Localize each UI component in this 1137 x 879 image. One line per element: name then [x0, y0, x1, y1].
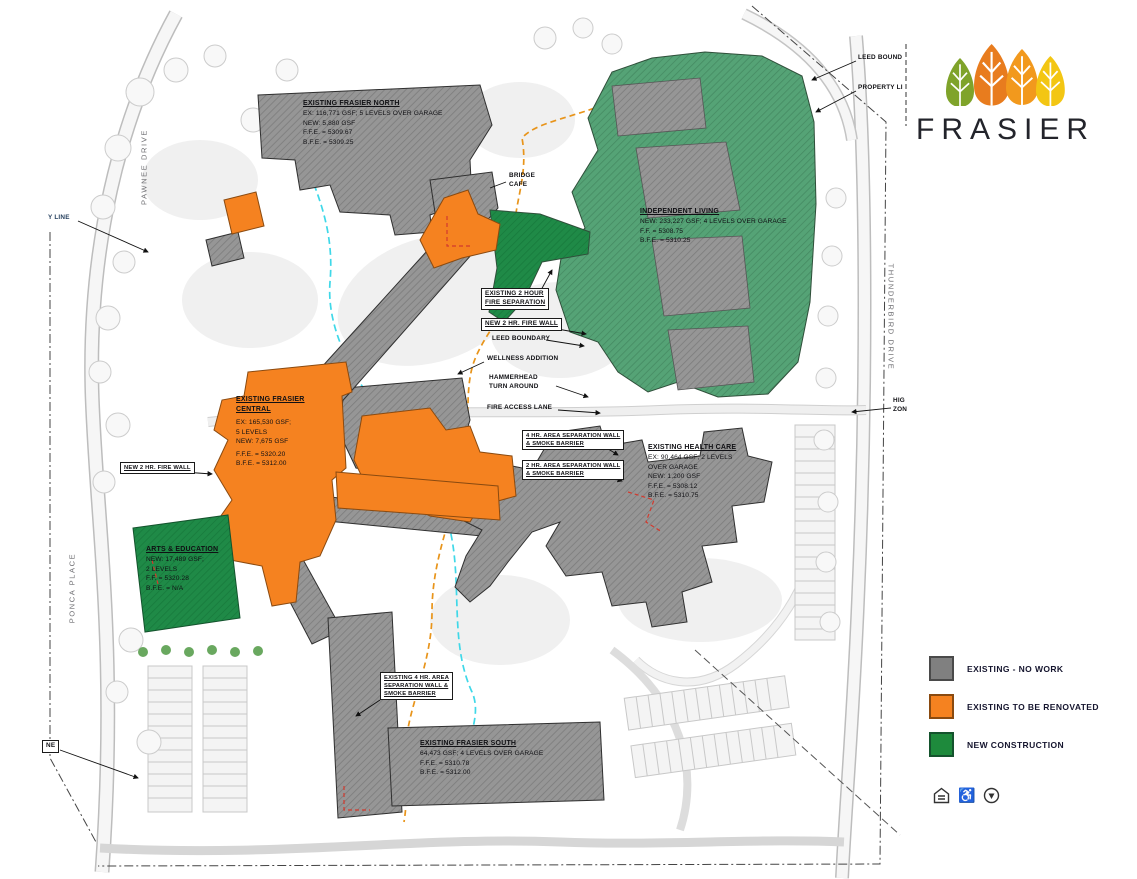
building-title: ARTS & EDUCATION — [146, 545, 241, 555]
callout-existing-4hr-separation: EXISTING 4 HR. AREA SEPARATION WALL & SM… — [380, 672, 453, 700]
legend: EXISTING - NO WORK EXISTING TO BE RENOVA… — [929, 656, 1099, 770]
street-thunderbird-drive: THUNDERBIRD DRIVE — [887, 264, 896, 371]
label-independent-living: INDEPENDENT LIVING NEW: 233,227 GSF; 4 L… — [640, 207, 830, 246]
legend-swatch-renovated — [929, 694, 954, 719]
legend-swatch-new — [929, 732, 954, 757]
callout-bridge-cafe: BRIDGE CAFE — [509, 172, 535, 190]
callout-new-2hr-fire-wall-mid: NEW 2 HR. FIRE WALL — [481, 318, 562, 331]
callout-property-line-right: PROPERTY LI — [858, 84, 903, 93]
callout-existing-2hr-fire-separation: EXISTING 2 HOUR FIRE SEPARATION — [481, 288, 549, 310]
frasier-wordmark: FRASIER — [916, 113, 1122, 147]
callout-high-zone: HIG ZON — [893, 397, 907, 415]
accessibility-icon: ♿ — [958, 787, 975, 804]
legend-item-new: NEW CONSTRUCTION — [929, 732, 1099, 757]
label-frasier-north: EXISTING FRASIER NORTH EX: 116,771 GSF; … — [303, 99, 483, 147]
callout-leed-boundary: LEED BOUNDARY — [492, 335, 550, 344]
building-title: EXISTING FRASIER CENTRAL — [236, 395, 321, 415]
label-health-care: EXISTING HEALTH CARE EX: 90,464 GSF; 2 L… — [648, 443, 778, 501]
street-pawnee-drive: PAWNEE DRIVE — [140, 129, 149, 205]
street-trees — [138, 645, 263, 657]
callout-4hr-separation-wall: 4 HR. AREA SEPARATION WALL & SMOKE BARRI… — [522, 430, 624, 450]
callout-2hr-separation-wall: 2 HR. AREA SEPARATION WALL & SMOKE BARRI… — [522, 460, 624, 480]
callout-ne: NE — [42, 740, 59, 753]
audio-loop-icon — [983, 787, 1000, 804]
callout-wellness-addition: WELLNESS ADDITION — [487, 355, 558, 364]
legend-label: EXISTING TO BE RENOVATED — [967, 702, 1099, 712]
callout-hammerhead-turnaround: HAMMERHEAD TURN AROUND — [489, 374, 539, 392]
callout-new-2hr-fire-wall-left: NEW 2 HR. FIRE WALL — [120, 462, 195, 474]
legend-swatch-existing — [929, 656, 954, 681]
legend-item-renovated: EXISTING TO BE RENOVATED — [929, 694, 1099, 719]
frasier-logo: FRASIER — [916, 44, 1122, 147]
building-title: EXISTING FRASIER NORTH — [303, 99, 483, 109]
building-title: EXISTING HEALTH CARE — [648, 443, 778, 453]
label-frasier-south: EXISTING FRASIER SOUTH 64,473 GSF; 4 LEV… — [420, 739, 590, 778]
equal-housing-icon — [933, 787, 950, 804]
street-ponca-place: PONCA PLACE — [68, 553, 77, 624]
callout-fire-access-lane: FIRE ACCESS LANE — [487, 404, 552, 413]
building-title: INDEPENDENT LIVING — [640, 207, 830, 217]
callout-property-line-left: Y LINE — [48, 214, 70, 223]
legend-label: EXISTING - NO WORK — [967, 664, 1063, 674]
callout-leed-bound: LEED BOUND — [858, 54, 902, 63]
label-frasier-central: EXISTING FRASIER CENTRAL EX: 165,530 GSF… — [236, 395, 346, 469]
label-arts-education: ARTS & EDUCATION NEW: 17,489 GSF; 2 LEVE… — [146, 545, 241, 593]
legend-item-existing: EXISTING - NO WORK — [929, 656, 1099, 681]
building-title: EXISTING FRASIER SOUTH — [420, 739, 590, 749]
legend-label: NEW CONSTRUCTION — [967, 740, 1064, 750]
certification-icons: ♿ — [933, 787, 1000, 804]
site-plan-page: EXISTING FRASIER NORTH EX: 116,771 GSF; … — [0, 0, 1137, 879]
frasier-logo-trees-icon — [944, 44, 1137, 106]
building-shape-orange-nw — [224, 192, 264, 234]
